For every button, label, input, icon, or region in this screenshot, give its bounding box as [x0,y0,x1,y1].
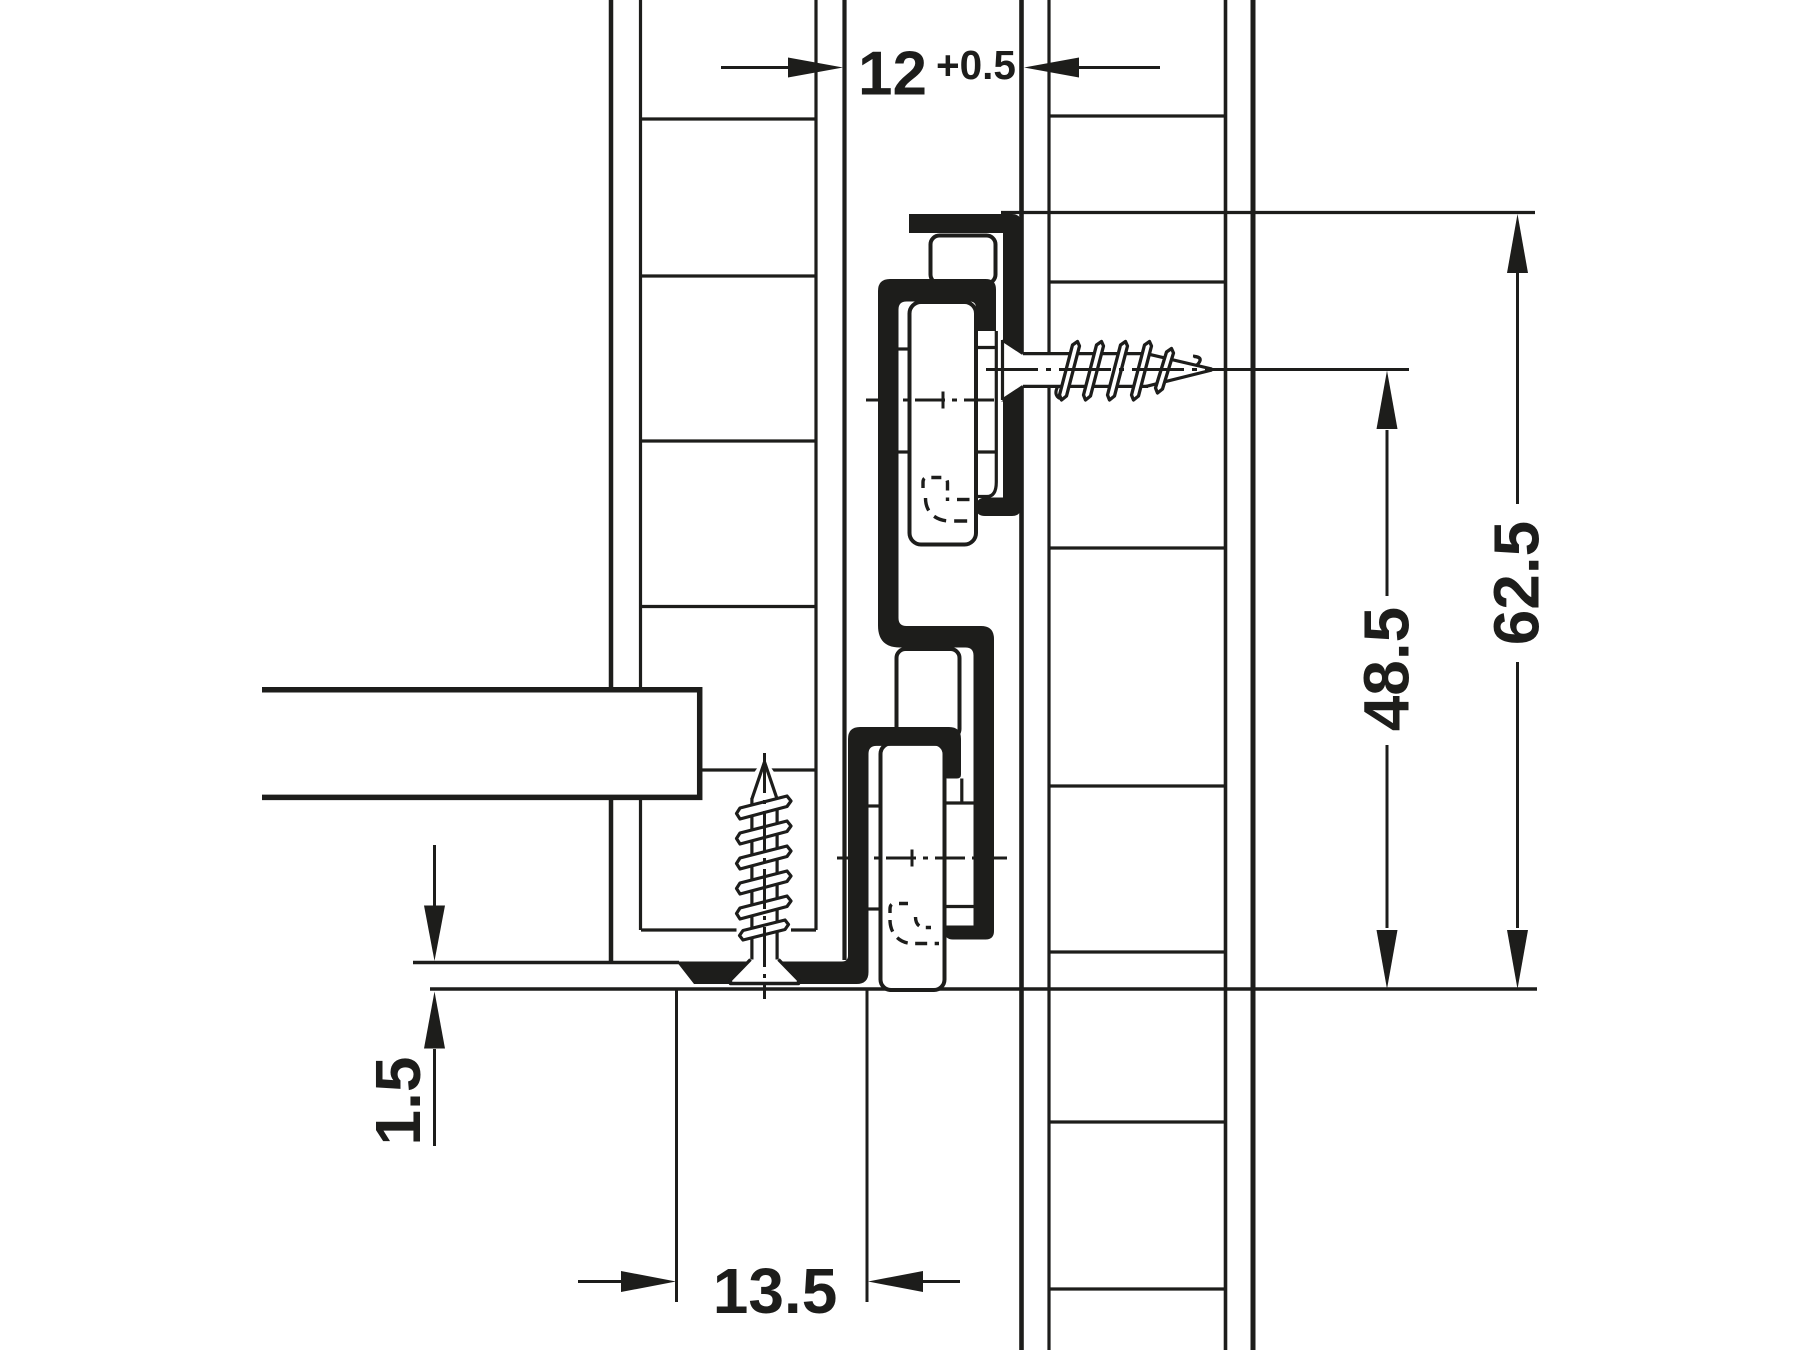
svg-text:62.5: 62.5 [1481,521,1553,646]
svg-text:1.5: 1.5 [362,1057,434,1146]
svg-text:13.5: 13.5 [713,1255,838,1327]
svg-text:+0.5: +0.5 [936,42,1016,88]
svg-text:12: 12 [858,40,927,109]
svg-text:48.5: 48.5 [1351,607,1423,732]
